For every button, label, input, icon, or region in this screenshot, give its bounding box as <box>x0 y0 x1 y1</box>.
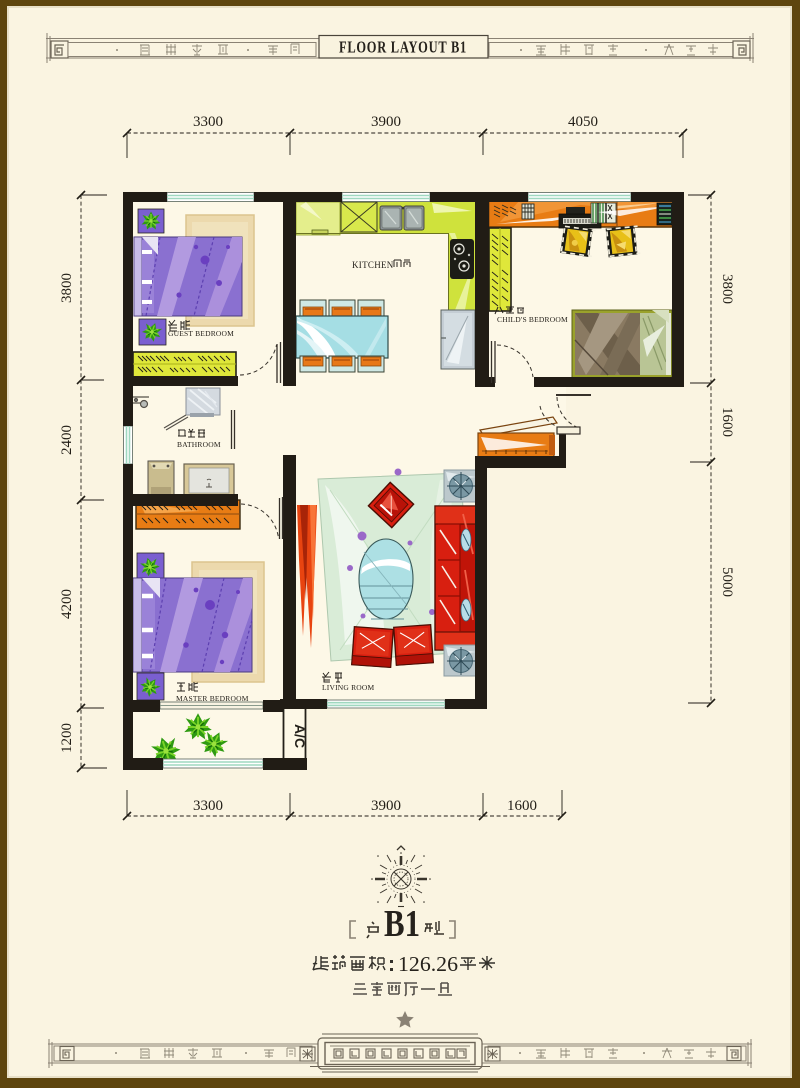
svg-text:126.26: 126.26 <box>398 952 458 976</box>
svg-text:4200: 4200 <box>59 589 75 619</box>
svg-text:1600: 1600 <box>507 798 537 814</box>
svg-text:FLOOR LAYOUT B1: FLOOR LAYOUT B1 <box>339 38 467 57</box>
svg-text:GUEST BEDROOM: GUEST BEDROOM <box>168 329 234 338</box>
svg-text:BATHROOM: BATHROOM <box>177 440 221 449</box>
svg-text:3900: 3900 <box>371 114 401 130</box>
svg-text:3300: 3300 <box>193 114 223 130</box>
svg-text:1600: 1600 <box>719 407 735 437</box>
svg-text:3900: 3900 <box>371 798 401 814</box>
svg-text:3300: 3300 <box>193 798 223 814</box>
svg-text:4050: 4050 <box>568 114 598 130</box>
svg-text:A/C: A/C <box>292 724 308 748</box>
svg-text:5000: 5000 <box>719 567 735 597</box>
svg-text:CHILD'S BEDROOM: CHILD'S BEDROOM <box>497 315 568 324</box>
svg-text:B1: B1 <box>384 903 420 945</box>
svg-text:3800: 3800 <box>719 274 735 304</box>
svg-text:3800: 3800 <box>59 273 75 303</box>
svg-text:2400: 2400 <box>59 425 75 455</box>
svg-text:1200: 1200 <box>59 723 75 753</box>
svg-text:KITCHEN: KITCHEN <box>352 260 394 270</box>
svg-text:LIVING ROOM: LIVING ROOM <box>322 683 375 692</box>
